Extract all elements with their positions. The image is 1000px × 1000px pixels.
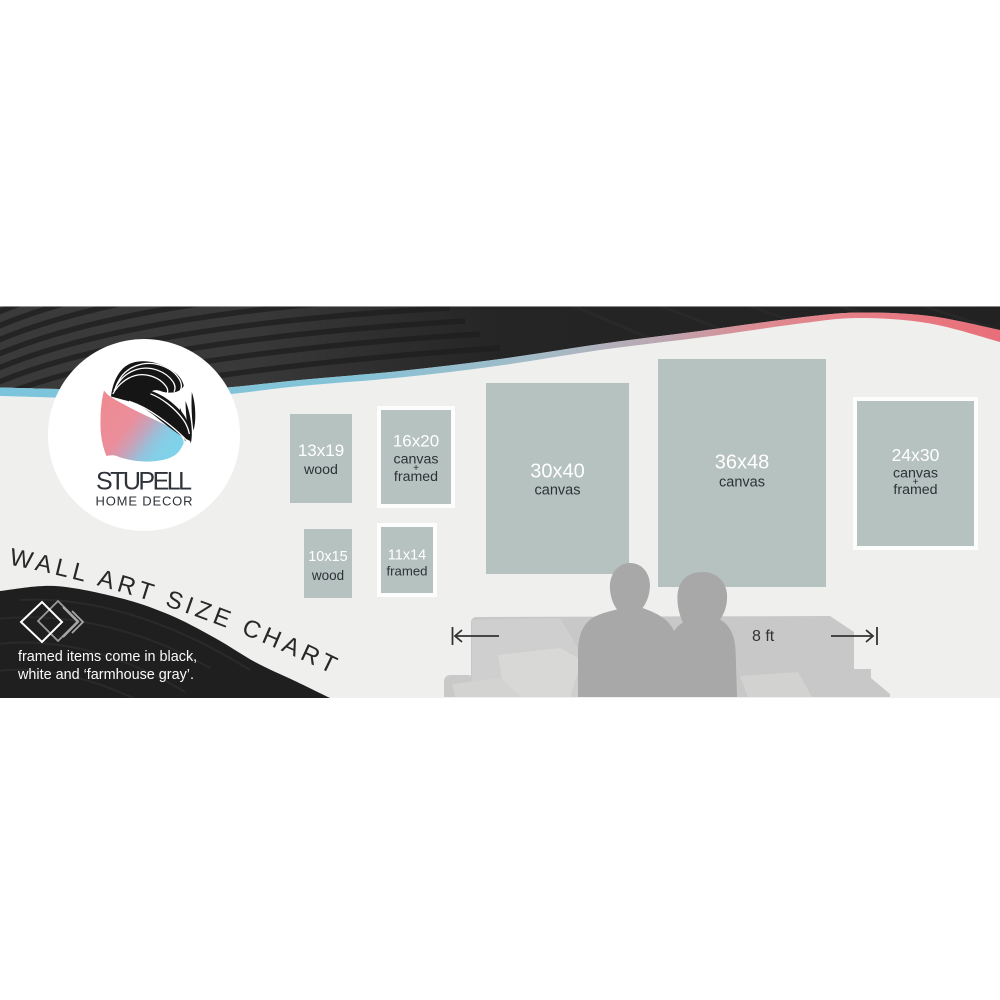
svg-text:wood: wood [311,568,344,583]
svg-text:10x15: 10x15 [308,549,348,565]
svg-text:framed: framed [893,482,937,498]
svg-text:36x48: 36x48 [715,452,770,474]
svg-text:13x19: 13x19 [298,441,344,460]
svg-text:framed items come in black,: framed items come in black, [18,649,197,665]
svg-text:framed: framed [386,564,427,579]
svg-text:canvas: canvas [719,475,765,491]
svg-text:HOME DECOR: HOME DECOR [96,494,193,509]
svg-text:white and ‘farmhouse gray’.: white and ‘farmhouse gray’. [17,667,194,683]
svg-text:8 ft: 8 ft [752,628,775,645]
svg-text:framed: framed [394,469,438,485]
svg-text:16x20: 16x20 [393,432,439,451]
svg-text:canvas: canvas [535,483,581,499]
svg-text:STUPELL: STUPELL [96,468,192,496]
svg-text:11x14: 11x14 [388,548,426,564]
svg-text:wood: wood [303,462,338,478]
svg-text:30x40: 30x40 [530,461,585,483]
svg-text:24x30: 24x30 [892,445,940,465]
